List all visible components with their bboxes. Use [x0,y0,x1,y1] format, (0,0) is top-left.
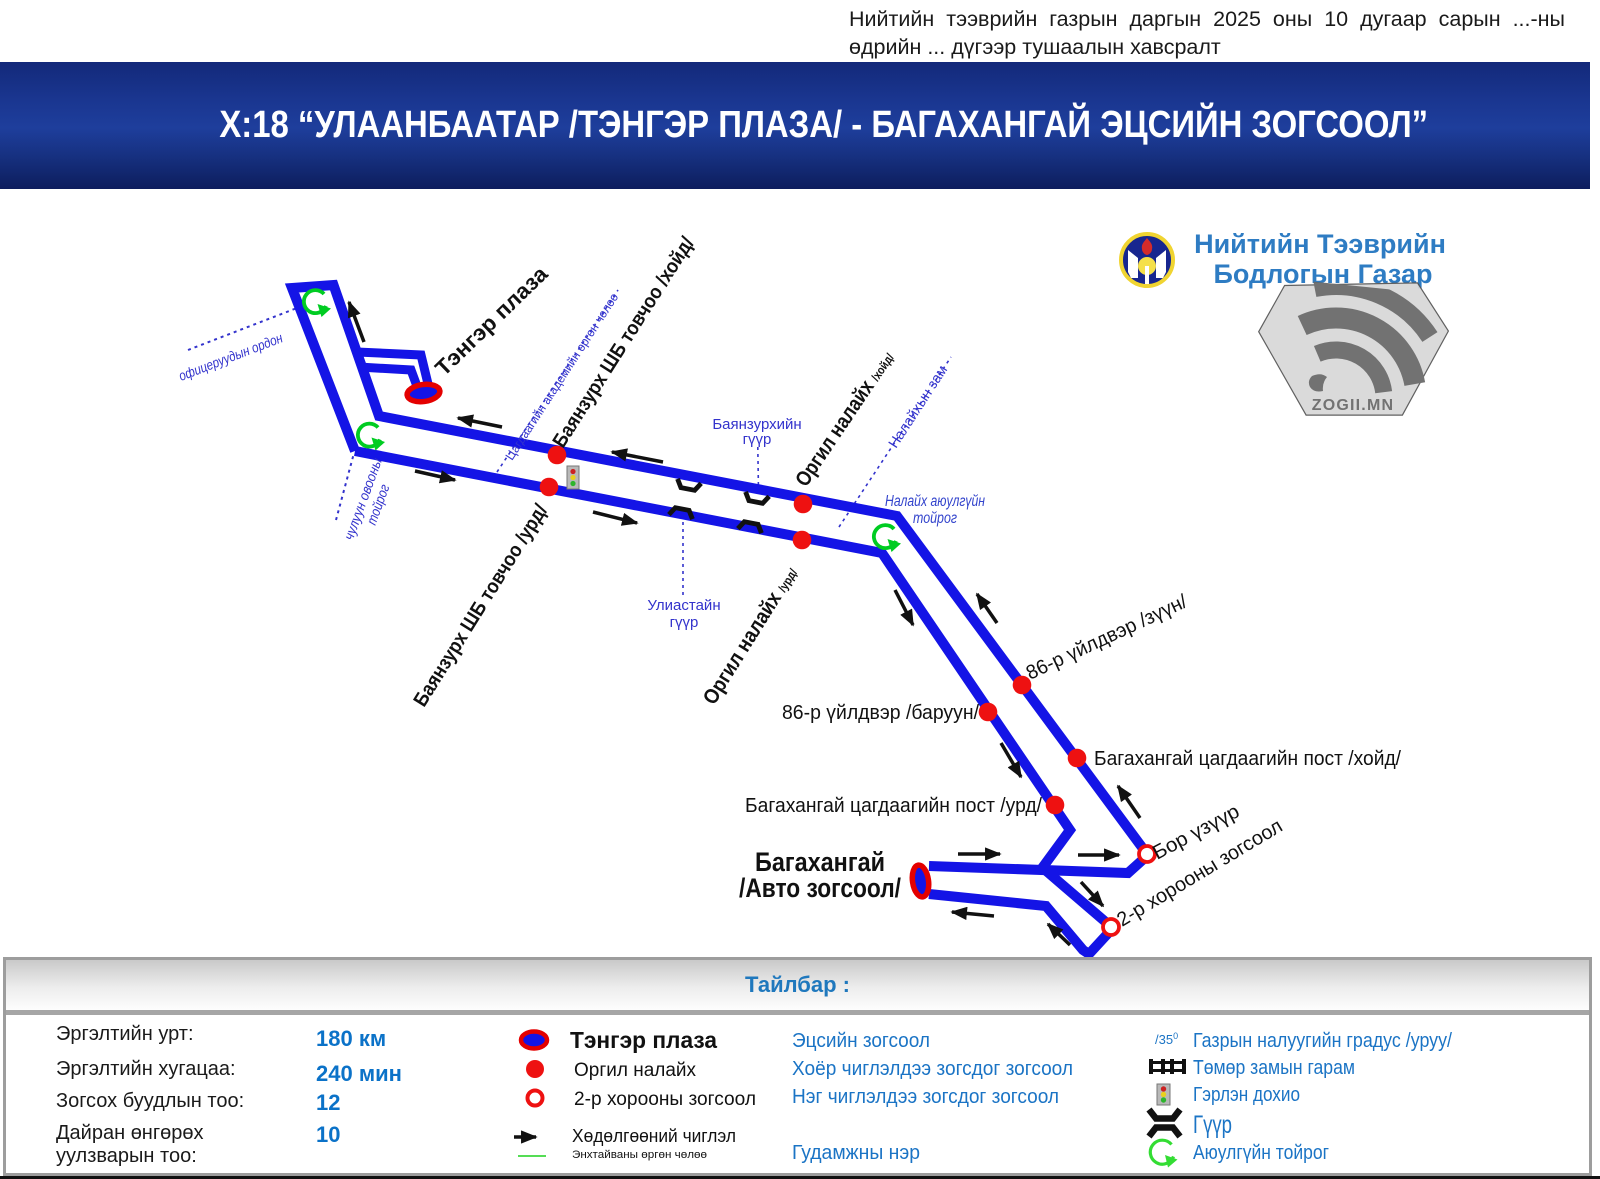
svg-text:Багахангай цагдаагийн пост /ур: Багахангай цагдаагийн пост /урд/ [745,795,1042,817]
svg-text:/Авто зогсоол/: /Авто зогсоол/ [739,873,901,903]
svg-text:ZOGII.MN: ZOGII.MN [1312,397,1394,414]
svg-text:Оргил налайх /урд/: Оргил налайх /урд/ [699,562,803,709]
svg-text:Оргил налайх /хойд/: Оргил налайх /хойд/ [791,346,899,490]
svg-text:86-р үйлдвэр /баруун/: 86-р үйлдвэр /баруун/ [782,702,979,724]
svg-text:офицеруудын ордон: офицеруудын ордон [176,329,285,383]
svg-text:Тэнгэр плаза: Тэнгэр плаза [430,261,553,381]
svg-text:86-р үйлдвэр /зүүн/: 86-р үйлдвэр /зүүн/ [1023,590,1191,684]
svg-text:гүүр: гүүр [743,431,772,448]
svg-text:Нийтийн Тээврийн: Нийтийн Тээврийн [1194,229,1446,259]
svg-text:гүүр: гүүр [670,614,699,631]
svg-text:Баянзурх ШБ товчоо /урд/: Баянзурх ШБ товчоо /урд/ [410,500,553,710]
svg-text:тойрог: тойрог [913,510,957,527]
svg-text:Налайх аюулгүйн: Налайх аюулгүйн [885,493,985,510]
svg-text:Улиастайн: Улиастайн [647,597,720,614]
svg-text:Баянзурх ШБ товчоо /хойд/: Баянзурх ШБ товчоо /хойд/ [549,233,699,452]
svg-text:Налайхын зам: Налайхын зам [886,363,951,451]
svg-text:Багахангай цагдаагийн пост /хо: Багахангай цагдаагийн пост /хойд/ [1094,748,1401,770]
